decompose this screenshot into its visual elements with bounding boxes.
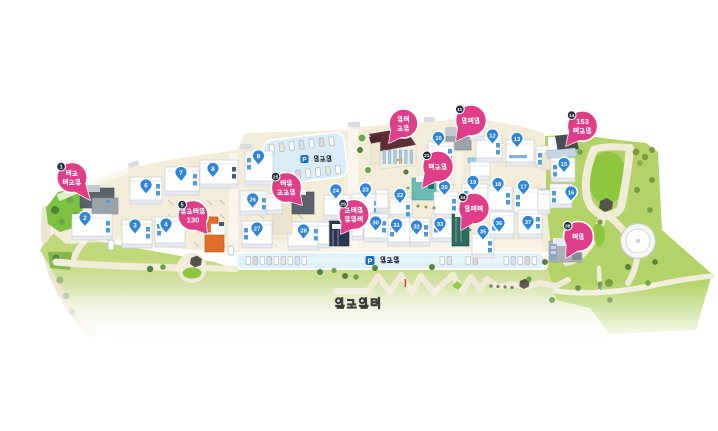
svg-text:5: 5 xyxy=(181,203,184,209)
svg-text:17: 17 xyxy=(520,184,527,190)
svg-text:7: 7 xyxy=(179,170,183,177)
svg-text:8: 8 xyxy=(211,166,215,173)
svg-text:12: 12 xyxy=(489,133,496,139)
svg-text:153: 153 xyxy=(576,117,589,126)
svg-text:30: 30 xyxy=(372,220,379,226)
svg-text:15: 15 xyxy=(561,162,568,168)
svg-text:35: 35 xyxy=(480,229,487,235)
svg-text:14: 14 xyxy=(569,113,575,119)
svg-text:28: 28 xyxy=(300,228,307,234)
svg-text:23: 23 xyxy=(362,187,369,193)
svg-text:10: 10 xyxy=(435,136,442,142)
svg-text:24: 24 xyxy=(333,188,340,194)
svg-text:33: 33 xyxy=(437,222,444,228)
svg-text:13: 13 xyxy=(514,137,521,143)
svg-text:37: 37 xyxy=(525,220,532,226)
svg-text:16: 16 xyxy=(568,190,575,196)
svg-text:11: 11 xyxy=(457,107,462,113)
svg-text:27: 27 xyxy=(254,226,261,232)
svg-text:4: 4 xyxy=(164,221,168,228)
svg-text:32: 32 xyxy=(413,224,420,230)
svg-text:25: 25 xyxy=(273,175,279,181)
svg-text:29: 29 xyxy=(340,202,346,208)
svg-text:38: 38 xyxy=(565,224,571,230)
svg-text:20: 20 xyxy=(441,185,448,191)
svg-text:3: 3 xyxy=(133,222,137,229)
svg-text:21: 21 xyxy=(424,153,430,159)
svg-text:36: 36 xyxy=(496,221,503,227)
svg-text:22: 22 xyxy=(397,193,404,199)
svg-text:1: 1 xyxy=(60,165,63,171)
svg-text:2: 2 xyxy=(83,215,87,222)
svg-text:34: 34 xyxy=(460,195,466,201)
svg-text:26: 26 xyxy=(249,197,256,203)
svg-text:31: 31 xyxy=(393,223,400,229)
svg-text:19: 19 xyxy=(470,180,477,186)
svg-text:18: 18 xyxy=(495,182,502,188)
svg-text:6: 6 xyxy=(144,182,148,189)
svg-text:130: 130 xyxy=(187,216,200,225)
svg-text:9: 9 xyxy=(257,153,261,160)
svg-text:P: P xyxy=(302,157,307,164)
